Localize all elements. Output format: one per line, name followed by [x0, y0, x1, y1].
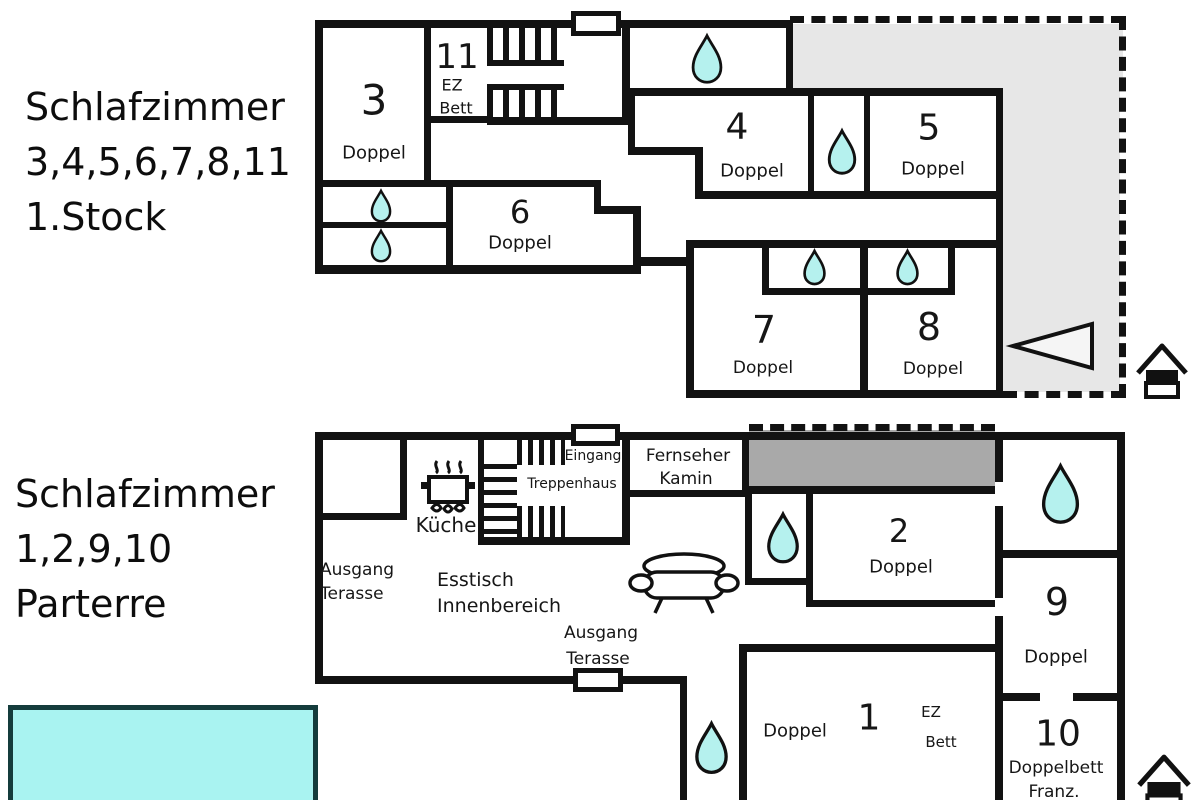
room-number: 1: [858, 698, 881, 739]
wall: [742, 432, 749, 497]
water-drop-icon: [894, 249, 921, 286]
room-type: Bett: [925, 733, 956, 751]
tv-label: Fernseher: [646, 446, 730, 466]
legend-lower-floor: Schlafzimmer 1,2,9,10 Parterre: [15, 467, 275, 632]
terrace-exit-label: Ausgang: [320, 560, 394, 580]
legend-upper-line3: 1.Stock: [25, 190, 291, 245]
wall: [400, 432, 407, 520]
legend-upper-line2: 3,4,5,6,7,8,11: [25, 135, 291, 190]
legend-upper-line1: Schlafzimmer: [25, 80, 291, 135]
water-drop-icon: [692, 720, 731, 776]
water-drop-icon: [687, 33, 727, 85]
wall: [622, 490, 749, 497]
wall: [628, 88, 1003, 96]
room-number: 9: [1045, 580, 1069, 624]
wall: [808, 94, 814, 194]
wall: [315, 265, 641, 274]
water-drop-icon: [1038, 462, 1083, 526]
water-drop-icon: [801, 249, 828, 286]
wall: [762, 240, 769, 295]
dining-label: Esstisch: [437, 569, 514, 591]
wall: [446, 180, 453, 272]
wall: [745, 578, 813, 585]
wall: [1073, 693, 1125, 701]
wall: [315, 432, 997, 440]
wall: [686, 390, 1003, 398]
legend-lower-line3: Parterre: [15, 577, 275, 632]
wall: [628, 88, 635, 154]
water-drop-icon: [764, 511, 802, 565]
room-number: 8: [917, 305, 941, 349]
room-number: 7: [752, 308, 776, 352]
terrace-exit-label: Ausgang: [564, 623, 638, 643]
door-opening: [995, 482, 1003, 506]
kitchen-label: Küche: [416, 513, 477, 537]
stairs-icon: [487, 84, 564, 122]
room-type: EZ: [441, 76, 462, 95]
wall: [1003, 550, 1117, 558]
door-opening: [995, 598, 1003, 616]
wall: [315, 180, 599, 187]
room-type: Doppel: [763, 721, 827, 742]
floorplan-page: Schlafzimmer 3,4,5,6,7,8,11 1.Stock Schl…: [0, 0, 1200, 800]
water-drop-icon: [825, 128, 859, 176]
wall: [864, 94, 870, 194]
house-icon: [1136, 341, 1188, 399]
wall: [315, 513, 407, 520]
dining-label: Innenbereich: [437, 595, 561, 617]
room-type: Doppel: [869, 557, 933, 578]
stairs-icon: [487, 26, 564, 66]
door-marker: [571, 424, 620, 446]
room-number: 5: [918, 108, 941, 149]
house-icon: [1137, 752, 1191, 800]
room-type: EZ: [921, 703, 941, 721]
room-type: Doppelbett: [1009, 758, 1104, 778]
wall: [622, 432, 630, 545]
legend-lower-line2: 1,2,9,10: [15, 522, 275, 577]
wall: [806, 600, 996, 607]
wall: [424, 20, 431, 187]
wall: [1117, 432, 1125, 800]
stairs-icon: [484, 464, 517, 536]
wall: [995, 432, 1125, 440]
room-type: Doppel: [342, 143, 406, 164]
wall: [315, 20, 323, 273]
fireplace-label: Kamin: [659, 469, 712, 489]
terrace-exit-label: Terasse: [320, 584, 384, 604]
room-type: Doppel: [903, 359, 963, 379]
wall: [860, 240, 868, 398]
door-marker: [573, 668, 623, 692]
direction-arrow-icon: [1008, 320, 1096, 372]
room-type: Doppel: [1024, 647, 1088, 668]
wall: [697, 191, 1003, 199]
wall: [633, 257, 688, 266]
stairwell-label: Treppenhaus: [527, 476, 616, 492]
wall: [806, 490, 813, 607]
room-type: Bett: [439, 99, 472, 118]
room-number: 4: [726, 107, 749, 148]
dashed-boundary-right: [1119, 16, 1126, 398]
wall: [762, 288, 955, 295]
wall: [739, 644, 998, 652]
dashed-boundary-lower: [749, 424, 995, 431]
stairs-icon: [517, 438, 565, 465]
wall: [995, 693, 1040, 701]
room-number: 6: [510, 193, 530, 231]
wall: [739, 644, 747, 800]
wall: [628, 147, 703, 155]
wall: [745, 490, 752, 585]
wall: [315, 432, 323, 684]
room-number: 3: [361, 76, 388, 125]
room-type: Doppel: [720, 161, 784, 182]
dashed-boundary-top: [790, 16, 1125, 23]
room-type: Doppel: [733, 358, 793, 378]
dashed-boundary-bottom: [1003, 391, 1125, 398]
legend-upper-floor: Schlafzimmer 3,4,5,6,7,8,11 1.Stock: [25, 80, 291, 245]
wall: [680, 682, 687, 800]
legend-lower-line1: Schlafzimmer: [15, 467, 275, 522]
room-number: 10: [1035, 714, 1081, 755]
wall: [686, 240, 1003, 248]
terrace-exit-label: Terasse: [566, 649, 630, 669]
wall: [786, 24, 793, 94]
water-drop-icon: [368, 229, 394, 263]
entrance-label: Eingang: [565, 448, 622, 464]
stairs-icon: [517, 506, 565, 538]
room-type: Doppel: [488, 233, 552, 254]
wall: [749, 486, 995, 494]
room-number: 2: [889, 512, 909, 550]
door-marker: [571, 11, 621, 36]
sofa-icon: [628, 550, 740, 616]
room-type: Franz.: [1028, 782, 1079, 800]
wall: [315, 676, 687, 684]
stove-pot-icon: [417, 456, 479, 516]
pool: [8, 705, 318, 800]
wall: [478, 537, 630, 545]
water-drop-icon: [368, 189, 394, 223]
room-type: Doppel: [901, 159, 965, 180]
room-number: 11: [435, 37, 478, 77]
wall: [948, 240, 955, 295]
